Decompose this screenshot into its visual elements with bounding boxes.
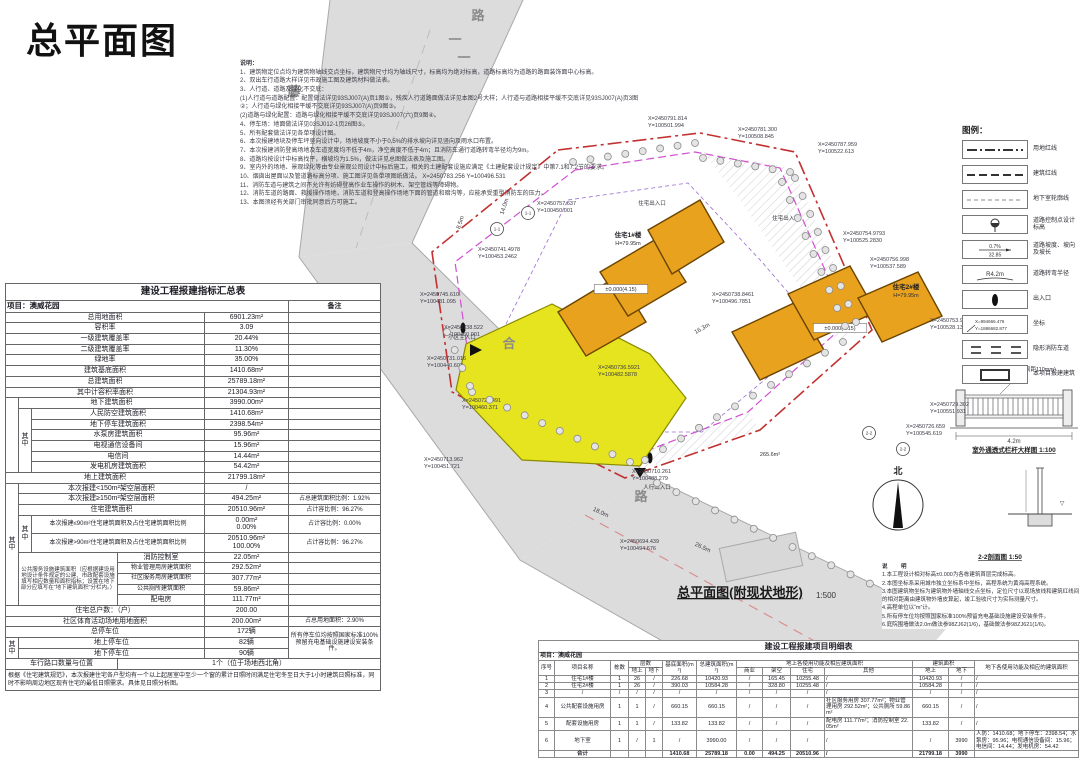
summary-table-cell: 3990.00m² [204, 398, 288, 409]
legend-item: 建筑红线 [962, 165, 1080, 184]
tree-icon [660, 446, 667, 453]
summary-table-cell: 人民防空建筑面积 [32, 408, 205, 419]
plan-label: Y=100545.619 [906, 431, 942, 437]
detail-table: 建设工程报建项目明细表 项目：澳威花园 序号 项目名称 栋数 层数 基底面积(m… [538, 640, 1079, 758]
tree-icon [692, 498, 699, 505]
detail-table-cell: / [825, 675, 913, 682]
svg-text:32.85: 32.85 [989, 252, 1002, 258]
detail-table-cell: / [975, 690, 1079, 697]
summary-table-cell: 物业管理用房建筑面积 [118, 563, 205, 574]
detail-table-cell: 660.15 [913, 697, 949, 717]
detail-table-cell: / [975, 717, 1079, 731]
detail-table-cell: 2 [539, 683, 555, 690]
plan-label: X=2450754.9793 [843, 231, 885, 237]
summary-table-cell [288, 334, 380, 345]
summary-table-cell: 配电房 [118, 595, 205, 606]
note-line: 7、本次报建消防登高场地及车道宽度均不低于4m，净空高度不低于4m；且消防车通行… [240, 147, 644, 156]
plan-note-line: 1.本工程设计相对标高±0.000为各栋建筑首层完成标高。 [882, 571, 1080, 579]
plan-label: X=2450781.300 [738, 127, 777, 133]
plan-label: X=2450745.610 [420, 292, 459, 298]
notes-heading: 说明： [240, 60, 644, 69]
detail-table-cell: / [646, 683, 663, 690]
detail-table-cell: 配套设施用房 [555, 717, 611, 731]
col-subheader: 商业 [737, 668, 763, 675]
detail-table-cell: / [737, 683, 763, 690]
col-header: 地下各使用功能及相应的建筑面积 [975, 661, 1079, 676]
legend-item: 出入口 [962, 290, 1080, 309]
tree-icon [840, 339, 847, 346]
plan-label: 小区主入口 [448, 333, 476, 341]
plan-label: 总平面图(附现状地形) [677, 585, 803, 600]
dashdot-symbol [962, 140, 1028, 159]
tree-icon [459, 365, 466, 372]
detail-table-cell: 21799.18 [913, 751, 949, 758]
detail-table-cell: / [975, 683, 1079, 690]
tree-icon [674, 142, 681, 149]
summary-table-cell: 容积率 [6, 323, 205, 334]
plan-label: 路 [634, 489, 648, 504]
plan-label: 2-2 [900, 447, 907, 452]
col-subheader: 地上 [913, 668, 949, 675]
summary-table-cell [288, 398, 380, 409]
plan-label: H=79.95m [615, 241, 641, 247]
detail-table-cell [611, 751, 629, 758]
tree-icon [444, 329, 451, 336]
summary-table-cell: 电视通信设备间 [32, 440, 205, 451]
tree-icon [866, 580, 873, 587]
detail-table-cell: / [629, 690, 646, 697]
tree-icon [731, 516, 738, 523]
tree-icon [808, 553, 815, 560]
summary-table-cell: 社区体育活动场地用地面积 [6, 616, 205, 627]
tree-icon [627, 459, 634, 466]
detail-table-cell: / [555, 690, 611, 697]
plan-label: 住宅1#楼 [615, 230, 642, 239]
col-subheader: 地下 [949, 668, 975, 675]
summary-table-cell: 14.44m² [204, 451, 288, 462]
summary-table-cell: 总建筑面积 [6, 376, 205, 387]
detail-table-cell: 合计 [555, 751, 611, 758]
summary-table-cell: 本次报建<150m²架空层面积 [19, 483, 205, 494]
tree-icon [714, 414, 721, 421]
summary-table-cell [288, 483, 380, 494]
tree-icon [734, 160, 741, 167]
detail-table-cell: 10255.48 [791, 683, 825, 690]
detail-table-cell: 1 [629, 697, 646, 717]
detail-table-cell: 10255.48 [791, 675, 825, 682]
summary-table-cell: 307.77m² [204, 573, 288, 584]
detail-table-cell: 10584.28 [697, 683, 737, 690]
tree-icon [810, 251, 817, 258]
summary-table-cell: 住宅总户数：（户） [6, 605, 205, 616]
tree-icon [678, 435, 685, 442]
tree-icon [769, 166, 776, 173]
detail-table-cell: / [949, 683, 975, 690]
detail-table-cell: 3990 [949, 751, 975, 758]
plan-label: Y=100440.603 [427, 363, 463, 369]
plan-label: Y=100525.2830 [843, 238, 882, 244]
detail-table-cell: 1 [611, 731, 629, 751]
tree-icon [451, 347, 458, 354]
plan-label: Y=100522.613 [818, 149, 854, 155]
plan-label: X=2450694.439 [620, 539, 659, 545]
plan-label: Y=100488.279 [632, 476, 668, 482]
tree-icon [642, 457, 649, 464]
plan-label: X=2450738.8461 [712, 292, 754, 298]
general-notes: 说明： 1、建筑物定位点均为建筑物轴线交点坐标，建筑物尺寸均为轴线尺寸，标高均为… [240, 60, 644, 208]
detail-table-cell: 人防：1410.68；地下停车：2398.54；水泵房：95.96；电视通信设备… [975, 731, 1079, 751]
summary-table-cell: 水泵房建筑面积 [32, 430, 205, 441]
detail-table-cell: / [629, 731, 646, 751]
plan-label: 1-1 [525, 211, 532, 216]
tree-icon [786, 371, 793, 378]
summary-table-cell: 90辆 [204, 648, 288, 659]
legend-label: 建筑红线 [1033, 171, 1057, 178]
detail-table-cell: 10584.28 [913, 683, 949, 690]
summary-table-cell: 住宅建筑面积 [19, 505, 205, 516]
plan-note-line: 5.所有停车位均按照国家标准100%预留充电基础设施建设安装条件。 [882, 613, 1080, 621]
legend-label: 道路坡度、坡向及坡长 [1033, 243, 1080, 256]
detail-table-cell: / [949, 717, 975, 731]
tree-icon [712, 507, 719, 514]
plan-label: ▽ [1060, 501, 1065, 507]
detail-table-cell: 494.25 [763, 751, 791, 758]
tree-icon [486, 396, 493, 403]
tree-icon [822, 247, 829, 254]
detail-table-cell: / [737, 690, 763, 697]
section-2-2-detail [1008, 468, 1072, 526]
note-line: 11、消防车道与建筑之间不允许有妨碍登高作业车操作的树木、架空管线等障碍物。 [240, 182, 644, 191]
tree-icon [787, 169, 794, 176]
detail-table-cell: 26 [629, 683, 646, 690]
tree-icon [779, 179, 786, 186]
plan-label: Y=100494.676 [620, 546, 656, 552]
summary-table-cell: 21799.18m² [204, 473, 288, 484]
tree-icon [521, 412, 528, 419]
col-header: 总建筑面积(m²) [697, 661, 737, 676]
plan-label: ±0.000(4.15) [605, 287, 636, 293]
summary-table-cell: 95.96m² [204, 430, 288, 441]
detail-table-cell: 10420.93 [913, 675, 949, 682]
summary-table-cell: 20510.96m² 100.00% [204, 534, 288, 552]
summary-table-cell: 25789.18m² [204, 376, 288, 387]
summary-table-cell [288, 366, 380, 377]
tree-icon [799, 193, 806, 200]
summary-table-cell: 地上建筑面积 [6, 473, 205, 484]
legend-label: 隐形消防车道 [1033, 346, 1069, 353]
tree-icon [818, 269, 825, 276]
detail-table-cell [539, 751, 555, 758]
detail-table-cell: 4 [539, 697, 555, 717]
summary-table-cell: 地上停车位 [19, 638, 205, 649]
summary-table-cell: / [204, 483, 288, 494]
legend-item: X=994666.476Y=1886682.877坐标 [962, 315, 1080, 334]
detail-table-cell: / [825, 731, 913, 751]
summary-table-cell: 备注 [288, 301, 380, 312]
col-subheader: 地下 [646, 668, 663, 675]
summary-table-cell: 20510.96m² [204, 505, 288, 516]
detail-table-cell: / [737, 731, 763, 751]
plan-label: X=2450713.962 [424, 457, 463, 463]
plan-label: 16.3m [694, 322, 711, 336]
detail-table-cell [646, 751, 663, 758]
col-subheader: 其他 [825, 668, 913, 675]
plan-note-line: 3.本图建筑物坐标为建筑物外墙轴线交点坐标，定位尺寸以现场放线和建筑红线间的相对… [882, 588, 1080, 605]
detail-table-cell: 390.03 [663, 683, 697, 690]
tree-icon [789, 544, 796, 551]
detail-table-cell: / [737, 717, 763, 731]
note-line: 4、停车场：地面做法详见03SJ012-1页26图⑤。 [240, 121, 644, 130]
tree-icon [717, 157, 724, 164]
plan-label: 1:500 [816, 591, 837, 600]
detail-table-cell: / [663, 731, 697, 751]
plan-label: 2-2剖面图 1:50 [978, 552, 1022, 561]
tree-icon [807, 211, 814, 218]
summary-table-cell: 111.77m² [204, 595, 288, 606]
summary-table-cell: 54.42m² [204, 462, 288, 473]
summary-table-cell: 公共服务设施建筑面积（应根据建设用地设计条件规定的公建、市政配套设施填写相应数量… [19, 552, 118, 605]
fire-symbol [962, 340, 1028, 359]
detail-table-cell: / [825, 751, 913, 758]
summary-table-cell: 1410.68m² [204, 366, 288, 377]
col-header: 序号 [539, 661, 555, 676]
note-line: 8、道路均按设计中标高找平，横坡均为1.5%，做法详见总图做法表及施工图。 [240, 156, 644, 165]
plan-label: Y=100501.994 [648, 123, 684, 129]
detail-table-cell: / [611, 690, 629, 697]
tree-icon [692, 140, 699, 147]
detail-table-cell: / [913, 690, 949, 697]
tree-icon [750, 525, 757, 532]
tree-icon [750, 392, 757, 399]
detail-table-cell: / [791, 731, 825, 751]
summary-table-cell [288, 323, 380, 334]
plan-label: Y=100431.095 [420, 299, 456, 305]
detail-table-cell: 1 [611, 683, 629, 690]
legend-item: 地下室轮廓线 [962, 190, 1080, 209]
summary-table-cell: 总停车位 [6, 627, 205, 638]
col-header: 项目名称 [555, 661, 611, 676]
plan-label: ±0.000(4.15) [824, 326, 855, 332]
tree-icon [657, 145, 664, 152]
summary-table-cell: 其中 [19, 408, 32, 472]
summary-table-cell [288, 440, 380, 451]
plan-label: Y=100453.2462 [478, 254, 517, 260]
detail-table-cell: / [646, 697, 663, 717]
plan-label: Y=100496.7851 [712, 299, 751, 305]
radius-symbol: R4.2m [962, 265, 1028, 284]
svg-text:R4.2m: R4.2m [986, 272, 1004, 278]
summary-table-cell: 本次报建≤90m²住宅建筑面积及占住宅建筑面积比例 [32, 515, 205, 533]
summary-table-cell: 1410.68m² [204, 408, 288, 419]
detail-table-cell: / [949, 690, 975, 697]
detail-table-cell: / [646, 675, 663, 682]
note-line: 5、所有配套做法详见各单项设计图。 [240, 130, 644, 139]
summary-table-cell: 公共厕所建筑面积 [118, 584, 205, 595]
col-header: 层数 [629, 661, 663, 668]
detail-table-cell: 3990.00 [697, 731, 737, 751]
summary-table-cell: 社区服务用房建筑面积 [118, 573, 205, 584]
legend: 图例： 用地红线建筑红线地下室轮廓线道路控制点设计标高0.7%32.85道路坡度… [962, 124, 1080, 390]
fence-detail [950, 382, 1078, 440]
summary-table-cell: 其中计容积率面积 [6, 387, 205, 398]
tree-icon [826, 287, 833, 294]
detail-table-cell: 3990 [949, 731, 975, 751]
detail-table-cell: / [825, 683, 913, 690]
plan-label: Y=100482.5878 [598, 372, 637, 378]
detail-table-cell: / [763, 690, 791, 697]
summary-table-cell: 172辆 [204, 627, 288, 638]
summary-table-cell: 占计容比例：96.27% [288, 534, 380, 552]
detail-table-cell: 165.45 [763, 675, 791, 682]
summary-indicator-table: 建设工程报建指标汇总表项目：澳威花园备注总用地面积6901.23m²容积率3.0… [5, 283, 381, 691]
svg-text:0.7%: 0.7% [989, 244, 1001, 250]
summary-table-cell: 建筑基底面积 [6, 366, 205, 377]
summary-table-cell: 15.96m² [204, 440, 288, 451]
detail-table-cell: / [949, 675, 975, 682]
detail-table-cell: 26 [629, 675, 646, 682]
detail-table-cell: 1410.68 [663, 751, 697, 758]
summary-table-cell: 占总建筑面积比例：1.92% [288, 494, 380, 505]
detail-table-cell: 660.15 [663, 697, 697, 717]
col-header: 建筑面积 [913, 661, 975, 668]
note-line: 9、室内外的场地、景观绿化等由专业景观公司设计中标后施工，相关的土建配套设施应满… [240, 164, 644, 173]
col-header: 地上各使用功能及相应建筑面积 [737, 661, 913, 668]
plan-label: X=2450756.998 [870, 257, 909, 263]
tree-icon [504, 404, 511, 411]
note-line: 2、双出车行道路大样详见市政施工图及建筑材料做法表。 [240, 77, 644, 86]
plan-label: X=2450741.4978 [478, 247, 520, 253]
detail-table-project: 项目：澳威花园 [539, 653, 1079, 661]
plan-label: X=2450722.491 [462, 398, 501, 404]
entry-symbol [962, 290, 1028, 309]
detail-table-cell: / [737, 675, 763, 682]
summary-table-cell [288, 312, 380, 323]
tree-icon [673, 489, 680, 496]
svg-text:Y=1886682.877: Y=1886682.877 [975, 326, 1007, 331]
detail-table-cell: 1 [611, 675, 629, 682]
note-line: 12、消防车道的路面、救援操作场地，消防车道和登高操作场地下面的管道和暗沟等，应… [240, 190, 644, 199]
detail-table-cell: / [975, 675, 1079, 682]
plan-label: 合 [502, 336, 516, 351]
detail-table-cell: / [763, 697, 791, 717]
plan-label: X=2450731.016 [427, 356, 466, 362]
legend-label: 道路转弯半径 [1033, 271, 1069, 278]
plan-label: 2-2 [866, 431, 873, 436]
finedash-symbol [962, 190, 1028, 209]
summary-table-cell: 200.00 [204, 605, 288, 616]
summary-table-cell: 占计容比例：0.00% [288, 515, 380, 533]
detail-table-cell: / [791, 697, 825, 717]
plan-label: Y=100460.371 [462, 405, 498, 411]
summary-table-cell: 其中 [6, 483, 19, 605]
plan-label: H=79.95m [893, 293, 919, 299]
north-arrow [873, 480, 923, 530]
detail-table-cell: 1 [629, 717, 646, 731]
summary-table-cell: 82辆 [204, 638, 288, 649]
summary-table-cell: 一级建筑覆盖率 [6, 334, 205, 345]
detail-table-cell: / [763, 717, 791, 731]
summary-table-cell [288, 344, 380, 355]
summary-table-cell: 6901.23m² [204, 312, 288, 323]
summary-table-cell: 根据《住宅建筑规范》，本次报建住宅各户型均有一个以上起居室中至少一个窗的累计日照… [6, 670, 381, 691]
spot-symbol [962, 215, 1028, 234]
summary-table-cell [6, 398, 19, 473]
col-subheader: 架空 [763, 668, 791, 675]
summary-table-cell: 0.00m² 0.00% [204, 515, 288, 533]
summary-table-cell [288, 595, 380, 606]
detail-table-cell: 226.68 [663, 675, 697, 682]
legend-item: 0.7%32.85道路坡度、坡向及坡长 [962, 240, 1080, 259]
tree-icon [467, 383, 474, 390]
detail-table-cell: 1 [539, 675, 555, 682]
note-line: 6、本次报建地块及停车坪竖向设计中，场地坡度不小于0.5%的排水坡向详见竖向及雨… [240, 138, 644, 147]
detail-table-cell: 0.00 [737, 751, 763, 758]
summary-table-cell: 200.00m² [204, 616, 288, 627]
note-line: 10、烟囱出屋面以及管道路标高分项、施工图详见各单项图纸做法。 X=245078… [240, 173, 644, 182]
legend-title: 图例： [962, 124, 1080, 136]
tree-icon [842, 323, 849, 330]
summary-table-cell [288, 552, 380, 563]
note-line: 3、人行道、道路及绿化不交底： [240, 86, 644, 95]
legend-item: 隐形消防车道 [962, 340, 1080, 359]
tree-icon [700, 155, 707, 162]
tree-icon [830, 265, 837, 272]
summary-table-cell: 11.30% [204, 344, 288, 355]
tree-icon [786, 197, 793, 204]
summary-table-cell: 二级建筑覆盖率 [6, 344, 205, 355]
detail-table-cell: 20510.96 [791, 751, 825, 758]
summary-table-cell: 地下建筑面积 [19, 398, 205, 409]
detail-table-cell: 660.15 [697, 697, 737, 717]
summary-table-cell: 所有停车位均按照国家标准100%预留充电基础设施建设安装条件。 [288, 627, 380, 659]
col-subheader: 住宅 [791, 668, 825, 675]
plan-note-line: 6.庭院围墙做法2.0m做法参98ZJ62(1/6)，基础做法参98ZJ621(… [882, 621, 1080, 629]
summary-table-cell: 绿地率 [6, 355, 205, 366]
legend-label: 地下室轮廓线 [1033, 196, 1069, 203]
summary-table-cell [288, 462, 380, 473]
detail-table-cell: / [825, 690, 913, 697]
plan-label: Y=100451.721 [424, 464, 460, 470]
plan-notes: 说 明 1.本工程设计相对标高±0.000为各栋建筑首层完成标高。2.本图坐标系… [882, 563, 1080, 629]
tree-icon [768, 381, 775, 388]
summary-table-cell: 本次报建>90m²住宅建筑面积及占住宅建筑面积比例 [32, 534, 205, 552]
summary-table-cell: 地下停车位 [19, 648, 205, 659]
summary-table-cell: 20.44% [204, 334, 288, 345]
legend-label: 本项目报建建筑 [1033, 371, 1075, 378]
tree-icon [654, 480, 661, 487]
tree-icon [847, 571, 854, 578]
summary-table-cell: 494.25m² [204, 494, 288, 505]
summary-table-cell: 其中 [6, 638, 19, 659]
detail-table-cell: 25789.18 [697, 751, 737, 758]
tree-icon [853, 319, 860, 326]
detail-table-cell: 公共配套设施用房 [555, 697, 611, 717]
plan-label: Y=100528.130 [930, 325, 966, 331]
plan-note-line: 4.高程单位以“m”计。 [882, 604, 1080, 612]
tree-icon [794, 215, 801, 222]
summary-table-cell [288, 473, 380, 484]
detail-table-cell: 地下室 [555, 731, 611, 751]
col-subheader: 地上 [629, 668, 646, 675]
detail-table-cell: 5 [539, 717, 555, 731]
detail-table-cell: / [949, 697, 975, 717]
summary-table-cell: 3.09 [204, 323, 288, 334]
plan-label: Y=100450.001 [537, 208, 573, 214]
detail-table-cell: 社区服务用房 307.77m²；物业管理用房 292.52m²；公共厕所 59.… [825, 697, 913, 717]
tree-icon [696, 424, 703, 431]
summary-table-cell: 地下停车建筑面积 [32, 419, 205, 430]
tree-icon [752, 163, 759, 170]
